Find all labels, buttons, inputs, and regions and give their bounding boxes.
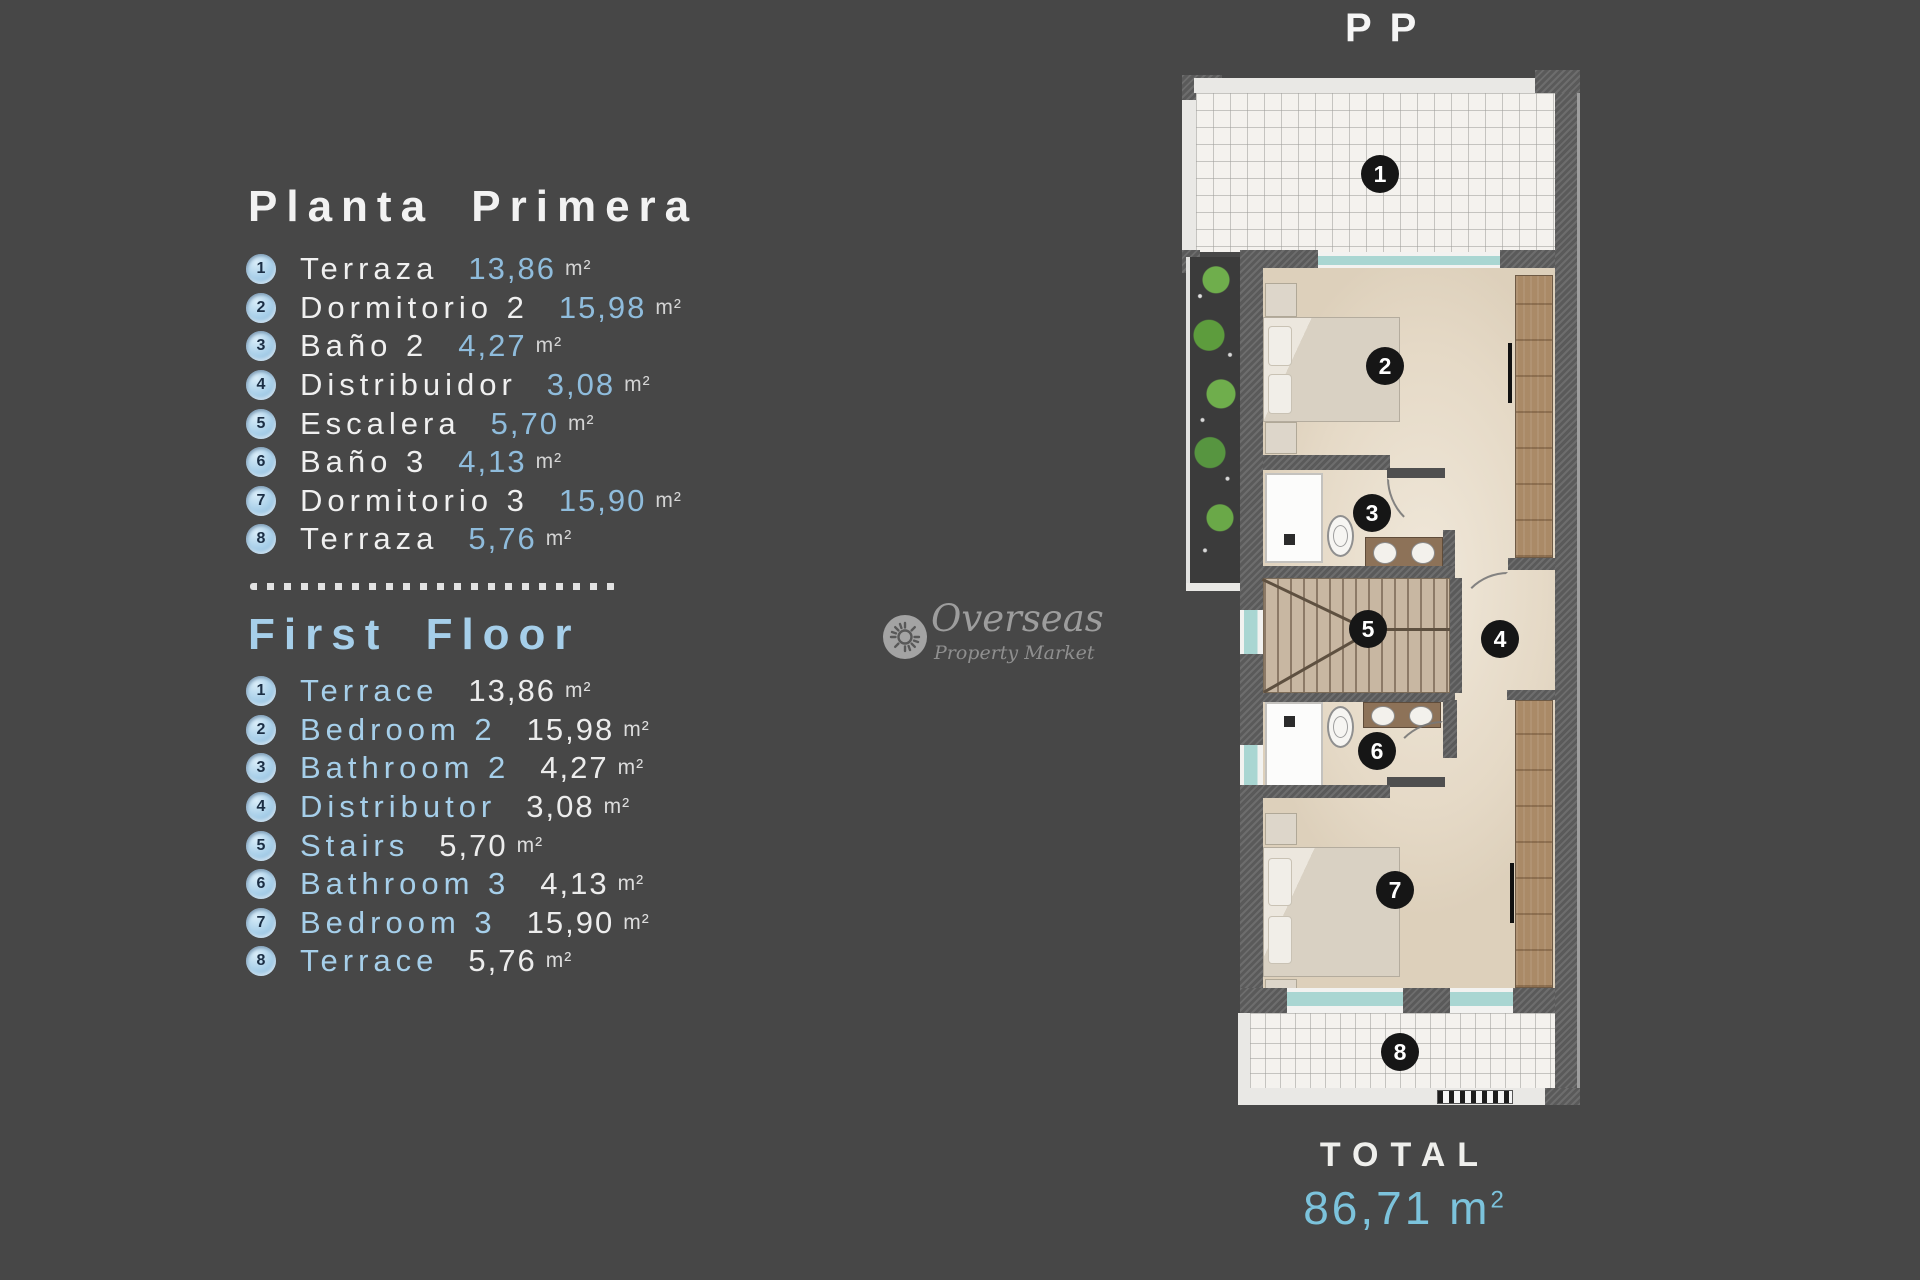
wardrobe-door-line (1508, 343, 1512, 403)
window-bedroom3-terrace (1287, 988, 1403, 1013)
room-label: Escalera (300, 406, 461, 442)
room-area-unit: m² (623, 718, 650, 742)
room-label: Bedroom 2 (300, 712, 497, 748)
nightstand (1265, 813, 1297, 845)
room-list-item: 4 Distributor 3,08 m² (246, 788, 650, 827)
room-list-item: 1 Terrace 13,86 m² (246, 672, 650, 711)
watermark-name: Overseas (931, 600, 1104, 637)
wall-stairs-bathroom3 (1263, 693, 1455, 702)
plan-title: PP (1345, 6, 1434, 51)
sun-icon (882, 614, 928, 660)
pillow (1268, 858, 1292, 906)
room-number-bullet: 7 (246, 486, 276, 516)
room-area-unit: m² (618, 756, 645, 780)
room-area-unit: m² (604, 795, 631, 819)
room-number-bullet: 1 (246, 254, 276, 284)
room-area-unit: m² (536, 450, 563, 474)
room-label: Stairs (300, 828, 409, 864)
room-list-english: 1 Terrace 13,86 m² 2 Bedroom 2 15,98 m² … (246, 672, 650, 981)
room-area-unit: m² (623, 911, 650, 935)
stair-marker-bars (1437, 1090, 1513, 1104)
room-area-value: 5,70 (439, 828, 507, 864)
terrace-left-parapet (1182, 100, 1196, 272)
room-number-bullet: 4 (246, 792, 276, 822)
room-list-item: 5 Stairs 5,70 m² (246, 826, 650, 865)
room-number-bullet: 8 (246, 946, 276, 976)
total-area-value: 86,71 (1303, 1182, 1433, 1234)
wardrobe-bedroom2 (1515, 275, 1553, 558)
room-area-unit: m² (565, 257, 592, 281)
room-list-item: 1 Terraza 13,86 m² (246, 250, 682, 289)
wall-bathroom2-stairs (1263, 566, 1455, 578)
sink (1373, 542, 1397, 564)
room-number-bullet: 5 (246, 409, 276, 439)
plan-room-number-2: 2 (1366, 347, 1404, 385)
nightstand (1265, 283, 1297, 317)
shower-drain (1284, 534, 1295, 545)
room-number-bullet: 7 (246, 908, 276, 938)
total-area-unit: m (1449, 1182, 1490, 1234)
room-label: Bathroom 3 (300, 866, 510, 902)
room-area-unit: m² (565, 679, 592, 703)
room-number-bullet: 6 (246, 447, 276, 477)
plan-room-number-8: 8 (1381, 1033, 1419, 1071)
plan-room-number-4: 4 (1481, 620, 1519, 658)
plan-room-number-6: 6 (1358, 732, 1396, 770)
room-label: Distributor (300, 789, 496, 825)
wall-stairs-right (1450, 578, 1462, 693)
room-area-value: 15,90 (527, 905, 615, 941)
room-area-value: 5,76 (468, 521, 536, 557)
nightstand (1265, 422, 1297, 454)
window-stairs-left (1240, 610, 1263, 654)
room-list-item: 4 Distribuidor 3,08 m² (246, 366, 682, 405)
pillow (1268, 374, 1292, 414)
room-number-bullet: 4 (246, 370, 276, 400)
page: { "background": "#474747", "accent_blue"… (0, 0, 1920, 1280)
room-label: Distribuidor (300, 367, 517, 403)
room-list-item: 7 Dormitorio 3 15,90 m² (246, 482, 682, 521)
wall-stub-bathroom3 (1443, 700, 1457, 758)
shower-drain (1284, 716, 1295, 727)
room-area-unit: m² (517, 834, 544, 858)
room-number-bullet: 2 (246, 715, 276, 745)
room-area-unit: m² (546, 527, 573, 551)
room-list-item: 2 Bedroom 2 15,98 m² (246, 711, 650, 750)
room-area-value: 15,90 (559, 483, 647, 519)
room-label: Baño 3 (300, 444, 428, 480)
room-list-item: 2 Dormitorio 2 15,98 m² (246, 289, 682, 328)
room-area-unit: m² (618, 872, 645, 896)
room-label: Baño 2 (300, 328, 428, 364)
pillow (1268, 916, 1292, 964)
vanity-bathroom2 (1365, 537, 1443, 567)
room-label: Terraza (300, 521, 438, 557)
room-number-bullet: 6 (246, 869, 276, 899)
room-area-value: 4,13 (458, 444, 526, 480)
room-number-bullet: 5 (246, 831, 276, 861)
room-number-bullet: 3 (246, 331, 276, 361)
window-bedroom3-terrace2 (1450, 988, 1513, 1013)
room-area-value: 13,86 (468, 673, 556, 709)
room-area-value: 4,13 (540, 866, 608, 902)
toilet-bathroom2 (1327, 515, 1354, 557)
room-number-bullet: 1 (246, 676, 276, 706)
wardrobe-door-line (1510, 863, 1514, 923)
room-area-value: 4,27 (540, 750, 608, 786)
room-area-value: 5,70 (491, 406, 559, 442)
room-area-unit: m² (546, 949, 573, 973)
plan-room-number-7: 7 (1376, 871, 1414, 909)
total-area-sup: 2 (1490, 1187, 1506, 1214)
room-list-item: 8 Terrace 5,76 m² (246, 942, 650, 981)
wall-bedroom2-bathroom (1263, 455, 1390, 470)
dotted-divider (250, 583, 616, 590)
room-list-item: 6 Baño 3 4,13 m² (246, 443, 682, 482)
bed-bedroom3 (1263, 847, 1400, 977)
room-area-unit: m² (536, 334, 563, 358)
plan-room-number-1: 1 (1361, 155, 1399, 193)
wall-stub-wardrobe-lower (1507, 690, 1555, 700)
door-bathroom3 (1387, 777, 1445, 787)
plan-room-number-3: 3 (1353, 494, 1391, 532)
room-label: Terraza (300, 251, 438, 287)
wall-bottom-pillar (1403, 988, 1450, 1013)
wall-bottom-right-block (1513, 988, 1555, 1013)
room-area-unit: m² (624, 373, 651, 397)
room-area-value: 15,98 (559, 290, 647, 326)
room-list-spanish: 1 Terraza 13,86 m² 2 Dormitorio 2 15,98 … (246, 250, 682, 559)
watermark-logo: Overseas Property Market (855, 592, 1135, 682)
wall-bathroom3-bedroom3 (1263, 785, 1390, 798)
total-block: TOTAL 86,71 m2 (1240, 1136, 1570, 1235)
door-bathroom2 (1387, 468, 1445, 478)
room-label: Terrace (300, 943, 438, 979)
sink (1371, 706, 1395, 726)
room-area-value: 3,08 (526, 789, 594, 825)
terrace-top-parapet (1194, 78, 1535, 93)
window-bathroom3-left (1240, 745, 1263, 785)
room-label: Bedroom 3 (300, 905, 497, 941)
plan-room-number-5: 5 (1349, 610, 1387, 648)
room-label: Dormitorio 3 (300, 483, 529, 519)
room-list-item: 3 Baño 2 4,27 m² (246, 327, 682, 366)
garden-bottom-edge (1186, 583, 1240, 591)
wall-right-outer (1555, 93, 1580, 1103)
room-area-value: 4,27 (458, 328, 526, 364)
wardrobe-bedroom3 (1515, 700, 1553, 988)
room-area-value: 13,86 (468, 251, 556, 287)
toilet-bathroom3 (1327, 706, 1354, 748)
shower-bathroom3 (1265, 702, 1323, 787)
room-label: Terrace (300, 673, 438, 709)
room-label: Bathroom 2 (300, 750, 510, 786)
room-number-bullet: 3 (246, 753, 276, 783)
room-label: Dormitorio 2 (300, 290, 529, 326)
pillow (1268, 326, 1292, 366)
wall-bottom-right-corner (1545, 1088, 1580, 1105)
spanish-section-title: Planta Primera (248, 182, 698, 232)
garden-strip (1186, 257, 1240, 587)
shower-bathroom2 (1265, 473, 1323, 563)
room-area-unit: m² (655, 489, 682, 513)
room-list-item: 6 Bathroom 3 4,13 m² (246, 865, 650, 904)
sink (1411, 542, 1435, 564)
room-list-item: 5 Escalera 5,70 m² (246, 404, 682, 443)
room-area-value: 5,76 (468, 943, 536, 979)
floor-plan: 1 2 3 4 5 6 7 8 (1182, 70, 1584, 1115)
total-value: 86,71 m2 (1240, 1181, 1570, 1235)
room-number-bullet: 2 (246, 293, 276, 323)
wall-stub-wardrobe (1508, 558, 1555, 570)
wall-stub-bathroom2 (1443, 530, 1455, 570)
watermark-subtitle: Property Market (934, 642, 1094, 664)
room-area-value: 15,98 (527, 712, 615, 748)
room-number-bullet: 8 (246, 524, 276, 554)
room-area-unit: m² (568, 412, 595, 436)
room-list-item: 3 Bathroom 2 4,27 m² (246, 749, 650, 788)
room-list-item: 8 Terraza 5,76 m² (246, 520, 682, 559)
wall-bottom-left-block (1240, 988, 1287, 1013)
room-list-item: 7 Bedroom 3 15,90 m² (246, 904, 650, 943)
room-area-unit: m² (655, 296, 682, 320)
room-area-value: 3,08 (547, 367, 615, 403)
total-label: TOTAL (1240, 1136, 1570, 1175)
english-section-title: First Floor (248, 610, 581, 660)
